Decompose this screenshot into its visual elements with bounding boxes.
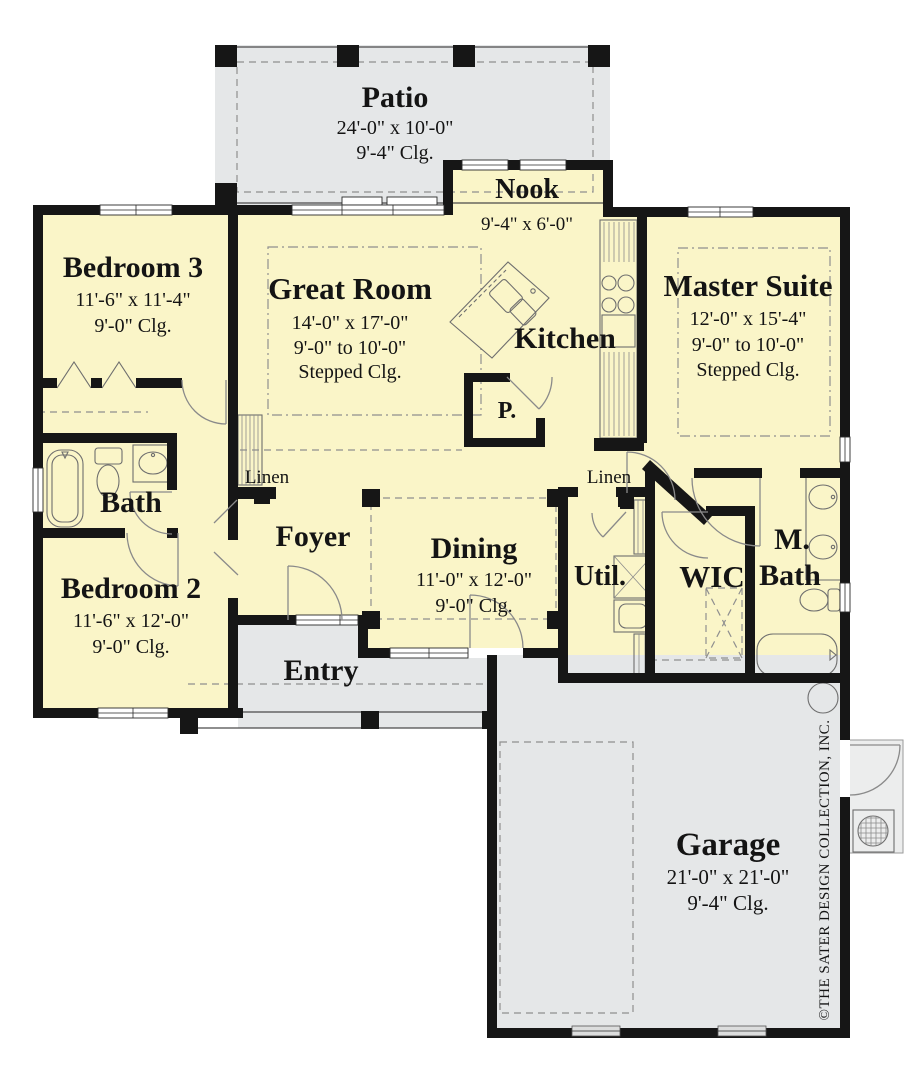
bedroom3-dim: 11'-6" x 11'-4"	[75, 289, 190, 311]
wall-garage-south	[487, 1028, 850, 1038]
patio-clg: 9'-4" Clg.	[356, 142, 433, 164]
master-suite-clg-type: Stepped Clg.	[696, 359, 799, 381]
garage-vent-2	[718, 1026, 766, 1036]
master-suite-clg-range: 9'-0" to 10'-0"	[692, 334, 804, 356]
wic-label: WIC	[679, 559, 744, 594]
great-room-dim: 14'-0" x 17'-0"	[292, 312, 409, 334]
wall-master-south-b	[800, 468, 850, 478]
linen-left-label: Linen	[245, 467, 290, 488]
window-bath	[33, 468, 43, 512]
master-bath-label-2: Bath	[759, 559, 821, 592]
patio-post-5	[215, 183, 237, 205]
copyright-text: ©THE SATER DESIGN COLLECTION, INC.	[817, 720, 833, 1021]
wall-wing-bottom	[558, 673, 850, 683]
porch-post-1	[361, 711, 379, 729]
garage-vent-1	[572, 1026, 620, 1036]
entry-label: Entry	[284, 654, 359, 687]
floor-plan-drawing: Patio 24'-0" x 10'-0" 9'-4" Clg. Nook 9'…	[0, 0, 920, 1080]
wall-closet-b	[91, 378, 102, 388]
wall-utility-west	[558, 495, 568, 683]
window-nook-2	[520, 160, 566, 170]
bedroom3-label: Bedroom 3	[63, 251, 203, 284]
foyer-label: Foyer	[276, 520, 351, 553]
master-suite-dim: 12'-0" x 15'-4"	[690, 308, 807, 330]
side-stoop	[848, 740, 903, 853]
great-room-clg-type: Stepped Clg.	[298, 361, 401, 383]
wall-closet-c	[136, 378, 182, 388]
wall-bath-top	[33, 433, 177, 443]
entry-porch-floor-2	[365, 658, 497, 728]
dining-column-3	[362, 611, 380, 629]
window-bedroom2	[98, 708, 168, 718]
window-bedroom3	[100, 205, 172, 215]
window-master-east	[840, 437, 850, 462]
dining-column-2	[547, 489, 565, 507]
pantry-label: P.	[498, 398, 516, 424]
garage-dim: 21'-0" x 21'-0"	[667, 865, 790, 889]
great-room-clg-range: 9'-0" to 10'-0"	[294, 337, 406, 359]
wall-bedroom3-east	[228, 205, 238, 497]
patio-step	[342, 197, 382, 205]
wall-bedroom2-east-b	[228, 598, 238, 718]
wall-bath-bottom-stub	[167, 528, 178, 538]
linen-left-post	[254, 491, 270, 504]
wall-right	[840, 207, 850, 1038]
bedroom3-clg: 9'-0" Clg.	[94, 315, 171, 337]
utility-label: Util.	[574, 561, 626, 592]
entry-door-sill	[296, 615, 358, 625]
window-nook-1	[462, 160, 508, 170]
wall-kitchen-master	[637, 207, 647, 443]
porch-post-2	[482, 711, 497, 729]
master-bath-label-1: M.	[774, 523, 810, 556]
master-suite-label: Master Suite	[663, 268, 832, 303]
wall-utility-east	[645, 468, 655, 683]
dining-dim: 11'-0" x 12'-0"	[416, 569, 532, 591]
wall-bath-east	[167, 433, 177, 490]
wall-pantry-east-stub	[536, 418, 545, 447]
great-room-label: Great Room	[268, 271, 432, 306]
patio-post-2	[337, 45, 359, 67]
wall-closet-a	[33, 378, 57, 388]
patio-post-3	[453, 45, 475, 67]
window-master	[688, 207, 753, 217]
garage-side-door-opening	[840, 740, 850, 797]
wall-pantry-south	[464, 438, 545, 447]
patio-label: Patio	[362, 81, 429, 114]
patio-post-4	[588, 45, 610, 67]
nook-dim: 9'-4" x 6'-0"	[481, 214, 573, 235]
wall-nook-left	[443, 160, 453, 215]
patio-dim: 24'-0" x 10'-0"	[337, 117, 454, 139]
wall-entry-stub	[180, 718, 198, 734]
wall-pantry-west	[464, 373, 473, 447]
dining-column-4	[547, 611, 565, 629]
bedroom2-dim: 11'-6" x 12'-0"	[73, 610, 189, 632]
wall-left	[33, 205, 43, 718]
wall-linen-right-stub	[594, 438, 644, 451]
bedroom2-clg: 9'-0" Clg.	[92, 636, 169, 658]
dining-column-1	[362, 489, 380, 507]
bath-label: Bath	[100, 486, 162, 519]
master-door-post	[620, 495, 634, 509]
linen-right-label: Linen	[587, 467, 632, 488]
garage-label: Garage	[676, 827, 780, 863]
window-dining	[390, 648, 468, 658]
nook-label: Nook	[495, 174, 559, 205]
dining-label: Dining	[431, 532, 518, 565]
window-great-room-sliders	[292, 205, 444, 215]
dining-clg: 9'-0" Clg.	[435, 595, 512, 617]
window-mbath-east	[840, 583, 850, 612]
wall-wic-mbath	[745, 506, 755, 683]
garage-floor	[497, 655, 840, 1038]
kitchen-label: Kitchen	[514, 322, 616, 355]
floor-plan-page: Patio 24'-0" x 10'-0" 9'-4" Clg. Nook 9'…	[0, 0, 920, 1080]
wall-bath-bottom	[33, 528, 125, 538]
bedroom2-label: Bedroom 2	[61, 572, 201, 605]
garage-clg: 9'-4" Clg.	[687, 891, 768, 915]
wall-master-south-a	[694, 468, 762, 478]
patio-step-2	[387, 197, 437, 205]
patio-post-1	[215, 45, 237, 67]
